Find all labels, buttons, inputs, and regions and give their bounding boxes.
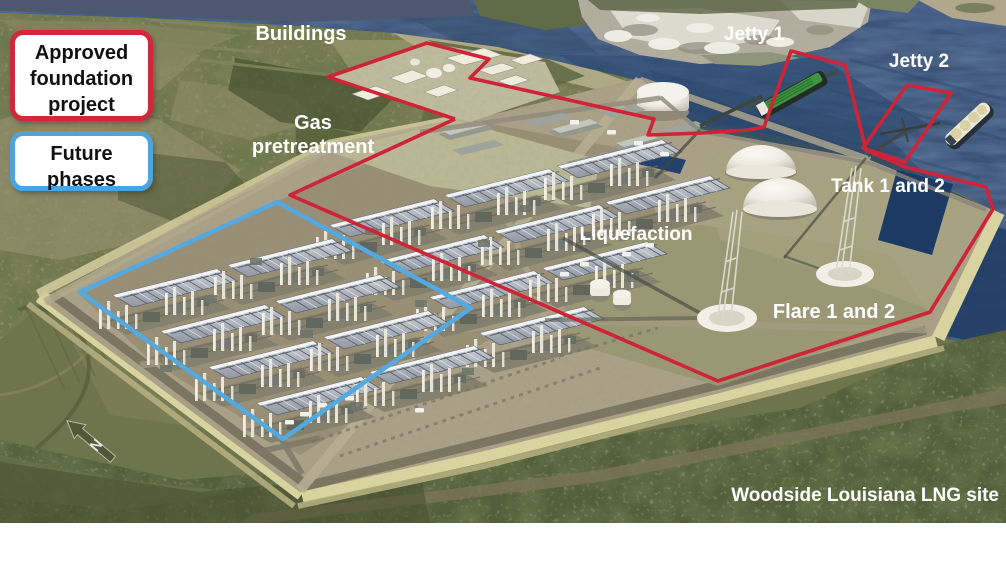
svg-text:Flare 1 and 2: Flare 1 and 2: [773, 301, 895, 323]
svg-text:Buildings: Buildings: [255, 23, 346, 45]
svg-text:pretreatment: pretreatment: [252, 136, 375, 158]
svg-text:Gas: Gas: [294, 112, 332, 134]
svg-text:Jetty 2: Jetty 2: [889, 51, 949, 72]
svg-text:Jetty 1: Jetty 1: [724, 24, 785, 45]
svg-text:Liquefaction: Liquefaction: [580, 224, 693, 245]
svg-text:Woodside Louisiana LNG site: Woodside Louisiana LNG site: [731, 485, 999, 506]
svg-text:Tank 1 and 2: Tank 1 and 2: [831, 176, 945, 197]
